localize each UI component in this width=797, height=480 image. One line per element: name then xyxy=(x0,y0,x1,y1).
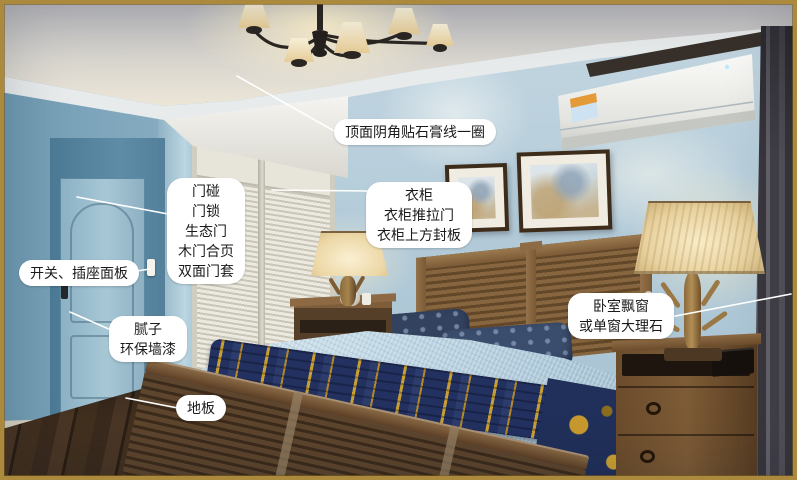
bedroom-door xyxy=(60,178,145,428)
label-text: 生态门 xyxy=(178,221,234,241)
label-text: 门碰 xyxy=(178,181,234,201)
label-floor: 地板 xyxy=(176,395,226,421)
table-lamp-left-base xyxy=(340,276,356,306)
label-ceiling-molding: 顶面阴角贴石膏线一圈 xyxy=(334,119,496,145)
label-text: 开关、插座面板 xyxy=(30,263,128,283)
label-wardrobe: 衣柜 衣柜推拉门 衣柜上方封板 xyxy=(366,182,472,248)
mug xyxy=(362,293,371,305)
label-text: 顶面阴角贴石膏线一圈 xyxy=(345,122,485,142)
drawer-ring-pull xyxy=(646,402,661,415)
annotated-bedroom-photo: 顶面阴角贴石膏线一圈 门碰 门锁 生态门 木门合页 双面门套 开关、插座面板 腻… xyxy=(0,0,797,480)
drawer-ring-pull xyxy=(640,450,655,463)
label-text: 地板 xyxy=(187,398,215,418)
table-lamp-right-shade xyxy=(634,201,765,274)
label-text: 衣柜 xyxy=(377,185,461,205)
picture-mat xyxy=(521,154,608,229)
picture-frame-right xyxy=(517,149,613,232)
drawer-divider xyxy=(618,434,754,436)
label-bay-window: 卧室飘窗 或单窗大理石 xyxy=(568,293,674,339)
label-text: 木门合页 xyxy=(178,241,234,261)
label-text: 或单窗大理石 xyxy=(579,316,663,336)
label-switch-panel: 开关、插座面板 xyxy=(19,260,139,286)
label-text: 衣柜上方封板 xyxy=(377,225,461,245)
table-lamp-right-base xyxy=(684,271,701,351)
light-switch-panel xyxy=(147,259,155,276)
drawer-divider xyxy=(618,386,754,388)
nightstand-shelf xyxy=(300,320,386,333)
label-text: 门锁 xyxy=(178,201,234,221)
label-text: 腻子 xyxy=(120,319,176,339)
label-text: 双面门套 xyxy=(178,261,234,281)
label-text: 衣柜推拉门 xyxy=(377,205,461,225)
watercolor-art xyxy=(530,163,599,219)
door-handle xyxy=(61,284,68,299)
label-door-hardware: 门碰 门锁 生态门 木门合页 双面门套 xyxy=(167,178,245,284)
label-text: 环保墙漆 xyxy=(120,339,176,359)
label-text: 卧室飘窗 xyxy=(579,296,663,316)
label-wall-paint: 腻子 环保墙漆 xyxy=(109,316,187,362)
lamp-plinth xyxy=(664,348,722,361)
